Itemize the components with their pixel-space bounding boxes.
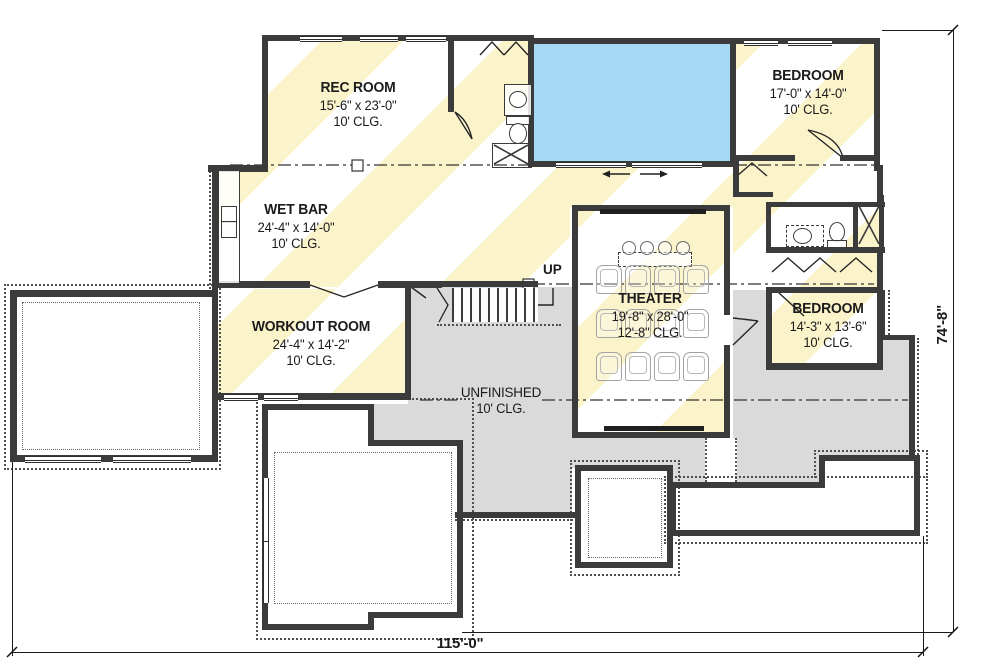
footing-line <box>588 478 662 558</box>
theater-seat <box>683 352 709 381</box>
room-label-rec-room: REC ROOM 15'-6" x 23'-0" 10' CLG. <box>320 80 397 131</box>
toilet <box>509 123 527 144</box>
sliding-door <box>632 162 702 168</box>
shower <box>857 204 883 248</box>
sink <box>793 228 812 244</box>
room-label-unfinished: UNFINISHED 10' CLG. <box>461 384 541 418</box>
theater-seat <box>596 265 622 294</box>
room-name: WET BAR <box>258 202 335 220</box>
window <box>360 36 398 42</box>
wall <box>840 155 880 161</box>
theater-seat <box>683 265 709 294</box>
wall <box>405 287 411 399</box>
wall <box>262 404 374 410</box>
theater-seat <box>625 265 651 294</box>
wall <box>572 205 578 438</box>
wall <box>530 38 736 44</box>
theater-seat <box>654 265 680 294</box>
theater-screen <box>600 209 706 214</box>
wall <box>572 432 730 438</box>
wall <box>438 281 538 287</box>
wall <box>10 290 17 462</box>
footing-line <box>437 324 561 328</box>
overall-depth-dimension: 74'-8" <box>934 305 951 345</box>
sink <box>509 91 527 108</box>
sliding-door <box>556 162 626 168</box>
room-ceiling: 12'-8" CLG. <box>612 325 689 341</box>
room-size: 17'-0" x 14'-0" <box>770 86 847 102</box>
unfinished-area <box>460 432 572 515</box>
footing-line <box>274 452 452 604</box>
room-label-theater: THEATER 19'-8" x 28'-0" 12'-8" CLG. <box>612 291 689 342</box>
bar-stool <box>640 241 654 255</box>
wall <box>670 530 920 536</box>
wall <box>766 287 883 293</box>
window <box>263 478 269 603</box>
toilet <box>829 222 845 242</box>
wall <box>670 482 676 536</box>
wall <box>766 363 883 370</box>
window <box>300 36 342 42</box>
wall <box>733 155 795 161</box>
room-ceiling: 10' CLG. <box>790 335 867 351</box>
window <box>25 456 101 463</box>
footing-line <box>22 302 200 450</box>
room-label-workout-room: WORKOUT ROOM 24'-4" x 14'-2" 10' CLG. <box>252 319 370 370</box>
wall <box>909 335 915 458</box>
theater-seat <box>596 352 622 381</box>
wet-bar-sink <box>221 221 237 238</box>
wall <box>819 455 920 461</box>
wall <box>575 465 581 568</box>
wall <box>575 562 673 568</box>
room-name: UNFINISHED <box>461 384 541 401</box>
toilet-tank <box>827 240 847 248</box>
theater-media-wall <box>604 426 704 431</box>
window <box>406 36 446 42</box>
bar-stool <box>622 241 636 255</box>
wall <box>733 192 773 197</box>
overall-width-dimension: 115'-0" <box>437 635 484 652</box>
room-name: WORKOUT ROOM <box>252 319 370 337</box>
floor-plan: 115'-0" 74'-8" REC ROOM 15'-6" x 23'-0" … <box>0 0 1000 670</box>
bar-stool <box>658 241 672 255</box>
wall <box>766 287 772 369</box>
wall <box>262 35 268 171</box>
window <box>264 394 298 401</box>
extension-line <box>923 536 924 656</box>
room-label-wet-bar: WET BAR 24'-4" x 14'-0" 10' CLG. <box>258 202 335 253</box>
wall <box>766 202 771 253</box>
room-ceiling: 10' CLG. <box>252 353 370 369</box>
wall <box>877 250 883 290</box>
stairs-up-label: UP <box>543 262 562 277</box>
wall <box>10 290 215 297</box>
footing-line <box>917 338 921 458</box>
room-label-bedroom-top: BEDROOM 17'-0" x 14'-0" 10' CLG. <box>770 68 847 119</box>
wall <box>880 290 885 340</box>
dimension-line-depth <box>953 30 954 632</box>
room-name: REC ROOM <box>320 80 397 98</box>
window <box>113 456 191 463</box>
room-ceiling: 10' CLG. <box>770 102 847 118</box>
stairs <box>452 288 538 322</box>
bar-stool <box>676 241 690 255</box>
footing-line <box>888 290 892 338</box>
room-size: 24'-4" x 14'-2" <box>252 337 370 353</box>
room-label-bedroom-right: BEDROOM 14'-3" x 13'-6" 10' CLG. <box>790 301 867 352</box>
wall <box>448 35 454 112</box>
window <box>224 394 258 401</box>
wall <box>450 35 534 41</box>
wall <box>670 482 825 488</box>
wall <box>724 345 730 438</box>
room-ceiling: 10' CLG. <box>320 114 397 130</box>
room-name: BEDROOM <box>790 301 867 319</box>
wall <box>368 612 463 618</box>
wall <box>262 624 374 630</box>
wall <box>575 465 673 471</box>
room-size: 24'-4" x 14'-0" <box>258 220 335 236</box>
window <box>744 40 778 46</box>
wall <box>368 440 463 446</box>
room-name: THEATER <box>612 291 689 309</box>
room-ceiling: 10' CLG. <box>258 236 335 252</box>
wall <box>914 455 920 536</box>
room-size: 14'-3" x 13'-6" <box>790 319 867 335</box>
room-name: BEDROOM <box>770 68 847 86</box>
extension-line <box>462 632 953 633</box>
wall <box>874 38 880 171</box>
wall <box>730 38 736 167</box>
room-size: 19'-8" x 28'-0" <box>612 309 689 325</box>
room-size: 15'-6" x 23'-0" <box>320 98 397 114</box>
dimension-line-width <box>12 652 923 653</box>
wall <box>455 512 575 518</box>
theater-seat <box>654 352 680 381</box>
wall <box>724 205 730 315</box>
theater-seat <box>625 352 651 381</box>
room-ceiling: 10' CLG. <box>461 401 541 417</box>
pool-water <box>534 44 730 164</box>
window <box>788 40 832 46</box>
shower <box>492 143 532 168</box>
extension-line <box>882 30 953 31</box>
extension-line <box>12 462 13 656</box>
footing-line <box>455 519 577 523</box>
wall <box>457 440 463 618</box>
